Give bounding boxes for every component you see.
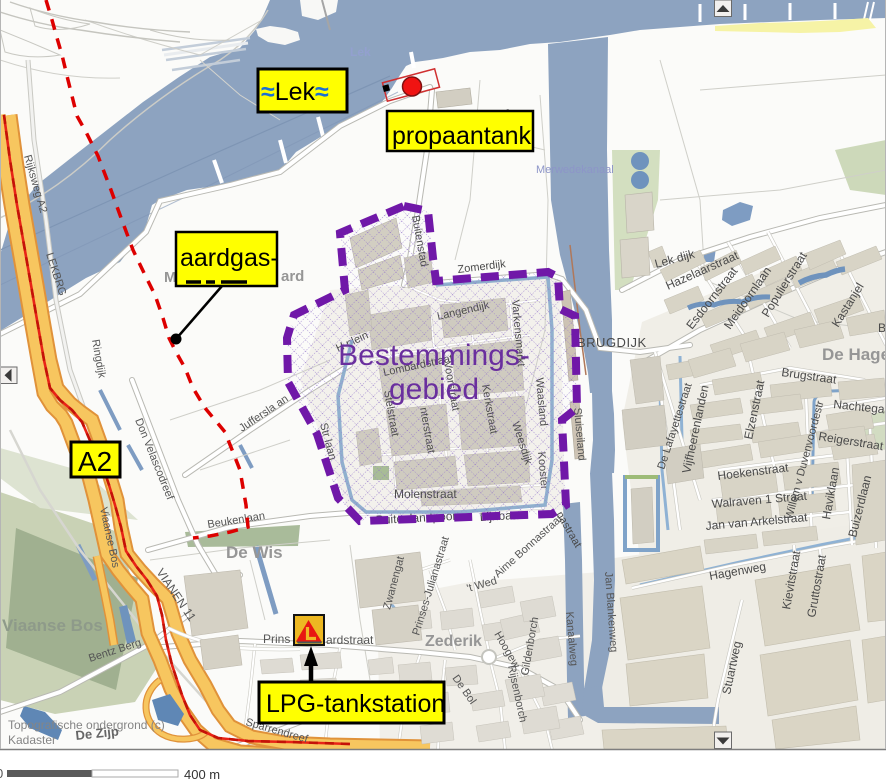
svg-text:ard: ard [281,268,304,285]
svg-text:Topografische ondergrond (c): Topografische ondergrond (c) [8,718,165,732]
svg-text:M: M [164,269,177,286]
svg-text:aardgas-: aardgas- [180,244,279,272]
svg-text:≈Lek≈: ≈Lek≈ [261,78,329,106]
svg-text:LPG-tankstation: LPG-tankstation [266,690,445,718]
svg-text:Merwedekanaal: Merwedekanaal [536,164,614,176]
svg-text:Zederik: Zederik [425,633,482,650]
svg-text:400 m: 400 m [184,767,220,782]
svg-text:propaantank: propaantank [392,122,532,150]
svg-text:Bestemmings-: Bestemmings- [338,339,530,372]
svg-text:Viaanse Bos: Viaanse Bos [2,616,103,635]
svg-text:De Hagen: De Hagen [822,345,886,364]
svg-text:De Wis: De Wis [226,543,283,562]
svg-text:0: 0 [0,766,3,781]
svg-text:ardstraat: ardstraat [326,633,374,647]
svg-text:B: B [878,321,886,335]
svg-text:A2: A2 [78,446,112,477]
svg-text:Lek: Lek [350,45,371,59]
svg-text:gebied: gebied [389,373,479,406]
svg-text:Kadaster: Kadaster [8,733,56,747]
svg-text:BRUGDIJK: BRUGDIJK [577,335,647,350]
svg-text:Prins: Prins [263,632,290,646]
